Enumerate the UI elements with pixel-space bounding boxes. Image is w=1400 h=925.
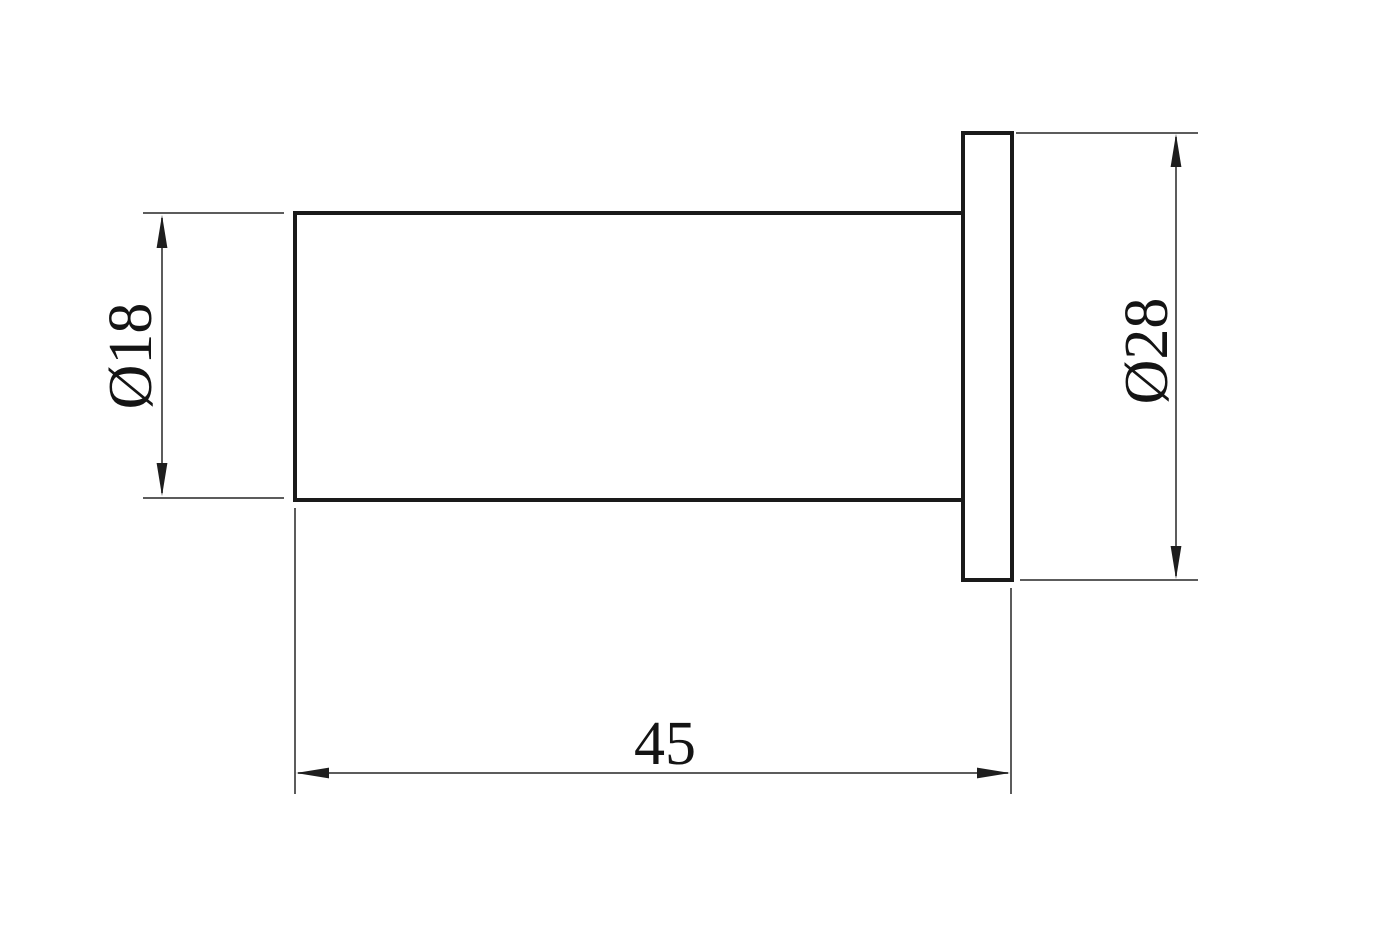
technical-drawing: Ø18 Ø28 45: [0, 0, 1400, 925]
arrowhead-up-icon: [1171, 134, 1182, 167]
dimension-shaft-diameter: Ø18: [97, 213, 284, 498]
arrowhead-down-icon: [157, 463, 168, 496]
dimension-label-shaft-diameter: Ø18: [97, 303, 165, 410]
shaft-body-outline: [295, 213, 963, 500]
arrowhead-down-icon: [1171, 546, 1182, 579]
dimension-label-overall-length: 45: [634, 710, 696, 778]
dimension-overall-length: 45: [295, 508, 1011, 794]
dimension-flange-diameter: Ø28: [1016, 133, 1198, 580]
arrowhead-up-icon: [157, 215, 168, 248]
arrowhead-right-icon: [977, 768, 1010, 779]
part-outline: [295, 133, 1012, 580]
flange-outline: [963, 133, 1012, 580]
arrowhead-left-icon: [296, 768, 329, 779]
drawing-sheet: Ø18 Ø28 45: [0, 0, 1400, 925]
dimension-label-flange-diameter: Ø28: [1113, 298, 1181, 405]
